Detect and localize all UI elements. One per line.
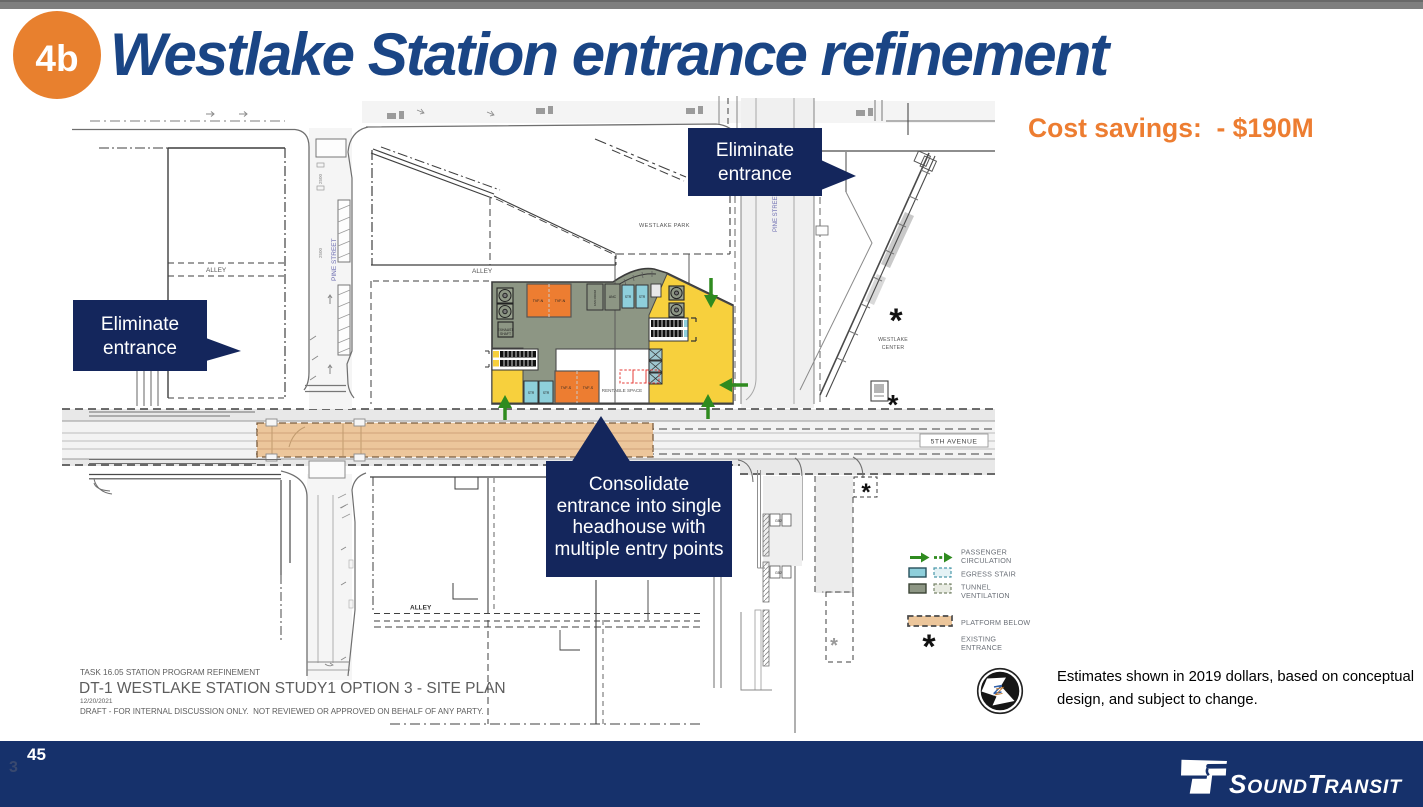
svg-text:TVF-S: TVF-S — [583, 386, 594, 390]
svg-text:VENTILATION: VENTILATION — [961, 591, 1010, 600]
svg-text:STR: STR — [528, 391, 535, 395]
svg-text:WESTLAKE: WESTLAKE — [878, 337, 908, 343]
svg-text:TVF-S: TVF-S — [561, 386, 572, 390]
svg-text:12/20/2021: 12/20/2021 — [80, 698, 113, 705]
svg-text:TVF-N: TVF-N — [555, 299, 566, 303]
svg-text:ALLEY: ALLEY — [472, 268, 493, 275]
svg-text:2500: 2500 — [318, 173, 323, 184]
svg-text:ANC: ANC — [609, 295, 617, 299]
svg-text:ALLEY: ALLEY — [206, 267, 227, 274]
svg-text:*: * — [888, 389, 899, 420]
svg-text:CENTER: CENTER — [882, 345, 905, 351]
svg-text:GB2: GB2 — [775, 519, 782, 523]
svg-text:SHAFT: SHAFT — [500, 332, 511, 336]
svg-text:SOUNDTRANSIT: SOUNDTRANSIT — [1229, 769, 1403, 799]
svg-text:*: * — [830, 635, 838, 657]
svg-text:TASK 16.05 STATION PROGRAM REF: TASK 16.05 STATION PROGRAM REFINEMENT — [80, 668, 260, 677]
svg-text:DT-1 WESTLAKE STATION STUDY1 O: DT-1 WESTLAKE STATION STUDY1 OPTION 3 - … — [79, 680, 506, 697]
svg-text:PINE STREET: PINE STREET — [773, 192, 779, 232]
svg-text:ENTRANCE: ENTRANCE — [961, 643, 1002, 652]
svg-text:FAN ROOM: FAN ROOM — [593, 290, 597, 307]
svg-text:CIRCULATION: CIRCULATION — [961, 556, 1011, 565]
svg-text:*: * — [861, 479, 871, 506]
svg-text:PLATFORM BELOW: PLATFORM BELOW — [961, 618, 1030, 627]
svg-text:STR: STR — [543, 391, 550, 395]
svg-text:*: * — [922, 628, 936, 666]
svg-text:2500: 2500 — [318, 247, 323, 258]
svg-text:EGRESS STAIR: EGRESS STAIR — [961, 570, 1016, 579]
svg-text:STR: STR — [625, 295, 632, 299]
svg-text:DRAFT - FOR INTERNAL DISCUSSIO: DRAFT - FOR INTERNAL DISCUSSION ONLY. NO… — [80, 707, 484, 716]
svg-text:RENTABLE SPACE: RENTABLE SPACE — [602, 388, 642, 393]
svg-text:PINE STREET: PINE STREET — [331, 238, 338, 281]
svg-text:*: * — [889, 302, 903, 340]
svg-text:ALLEY: ALLEY — [410, 605, 432, 612]
svg-text:STR: STR — [639, 295, 646, 299]
svg-text:TVF-N: TVF-N — [533, 299, 544, 303]
svg-text:GB2: GB2 — [775, 571, 782, 575]
svg-text:5TH AVENUE: 5TH AVENUE — [931, 439, 978, 446]
svg-text:WESTLAKE PARK: WESTLAKE PARK — [639, 223, 690, 229]
